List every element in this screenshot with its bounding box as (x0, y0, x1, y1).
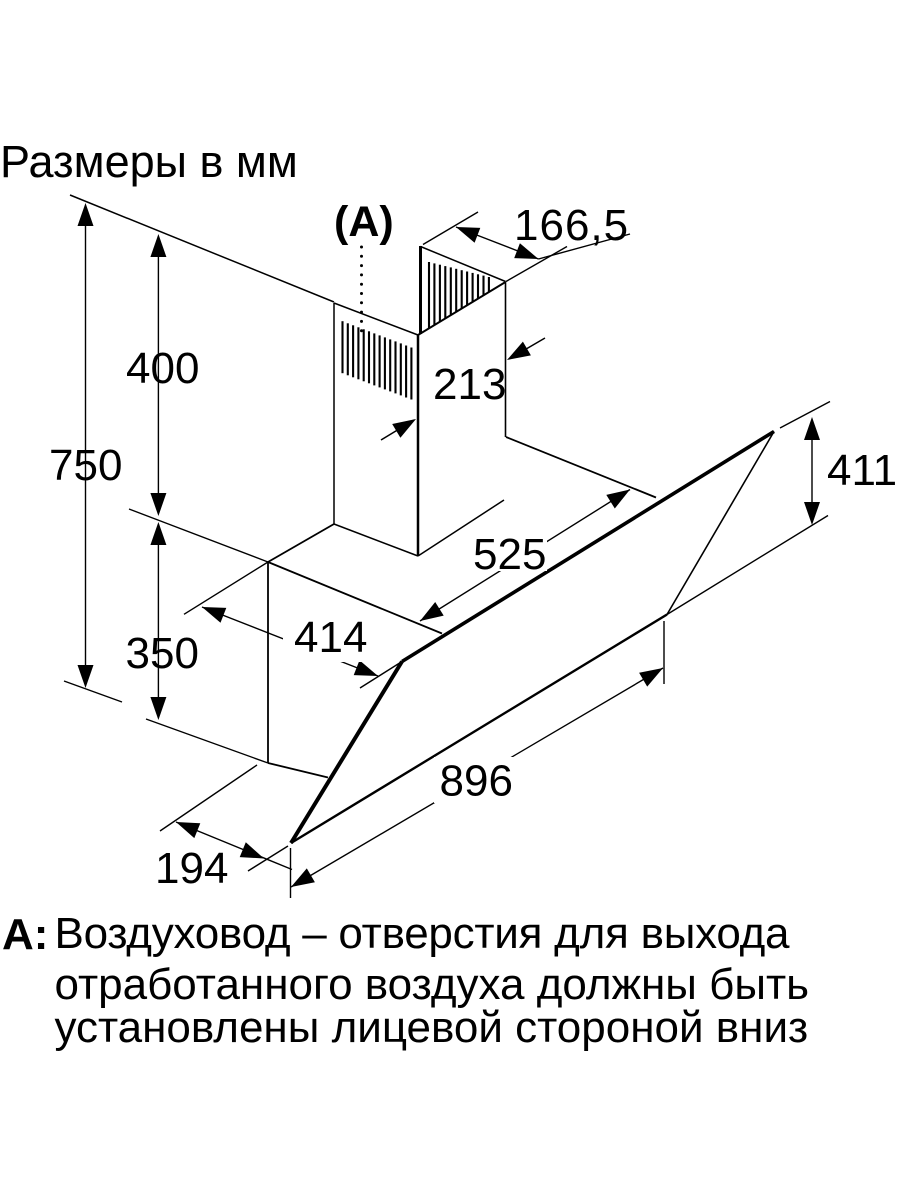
svg-text:194: 194 (155, 844, 228, 893)
svg-text:525: 525 (473, 530, 546, 579)
svg-text:(A): (A) (334, 198, 394, 246)
svg-text:213: 213 (433, 360, 506, 409)
svg-text:896: 896 (440, 757, 513, 806)
svg-text:414: 414 (294, 613, 367, 662)
svg-text:350: 350 (126, 629, 199, 678)
svg-text:166,5: 166,5 (514, 201, 629, 250)
svg-text:750: 750 (49, 441, 122, 490)
svg-text:400: 400 (126, 344, 199, 393)
svg-text:411: 411 (827, 446, 897, 495)
